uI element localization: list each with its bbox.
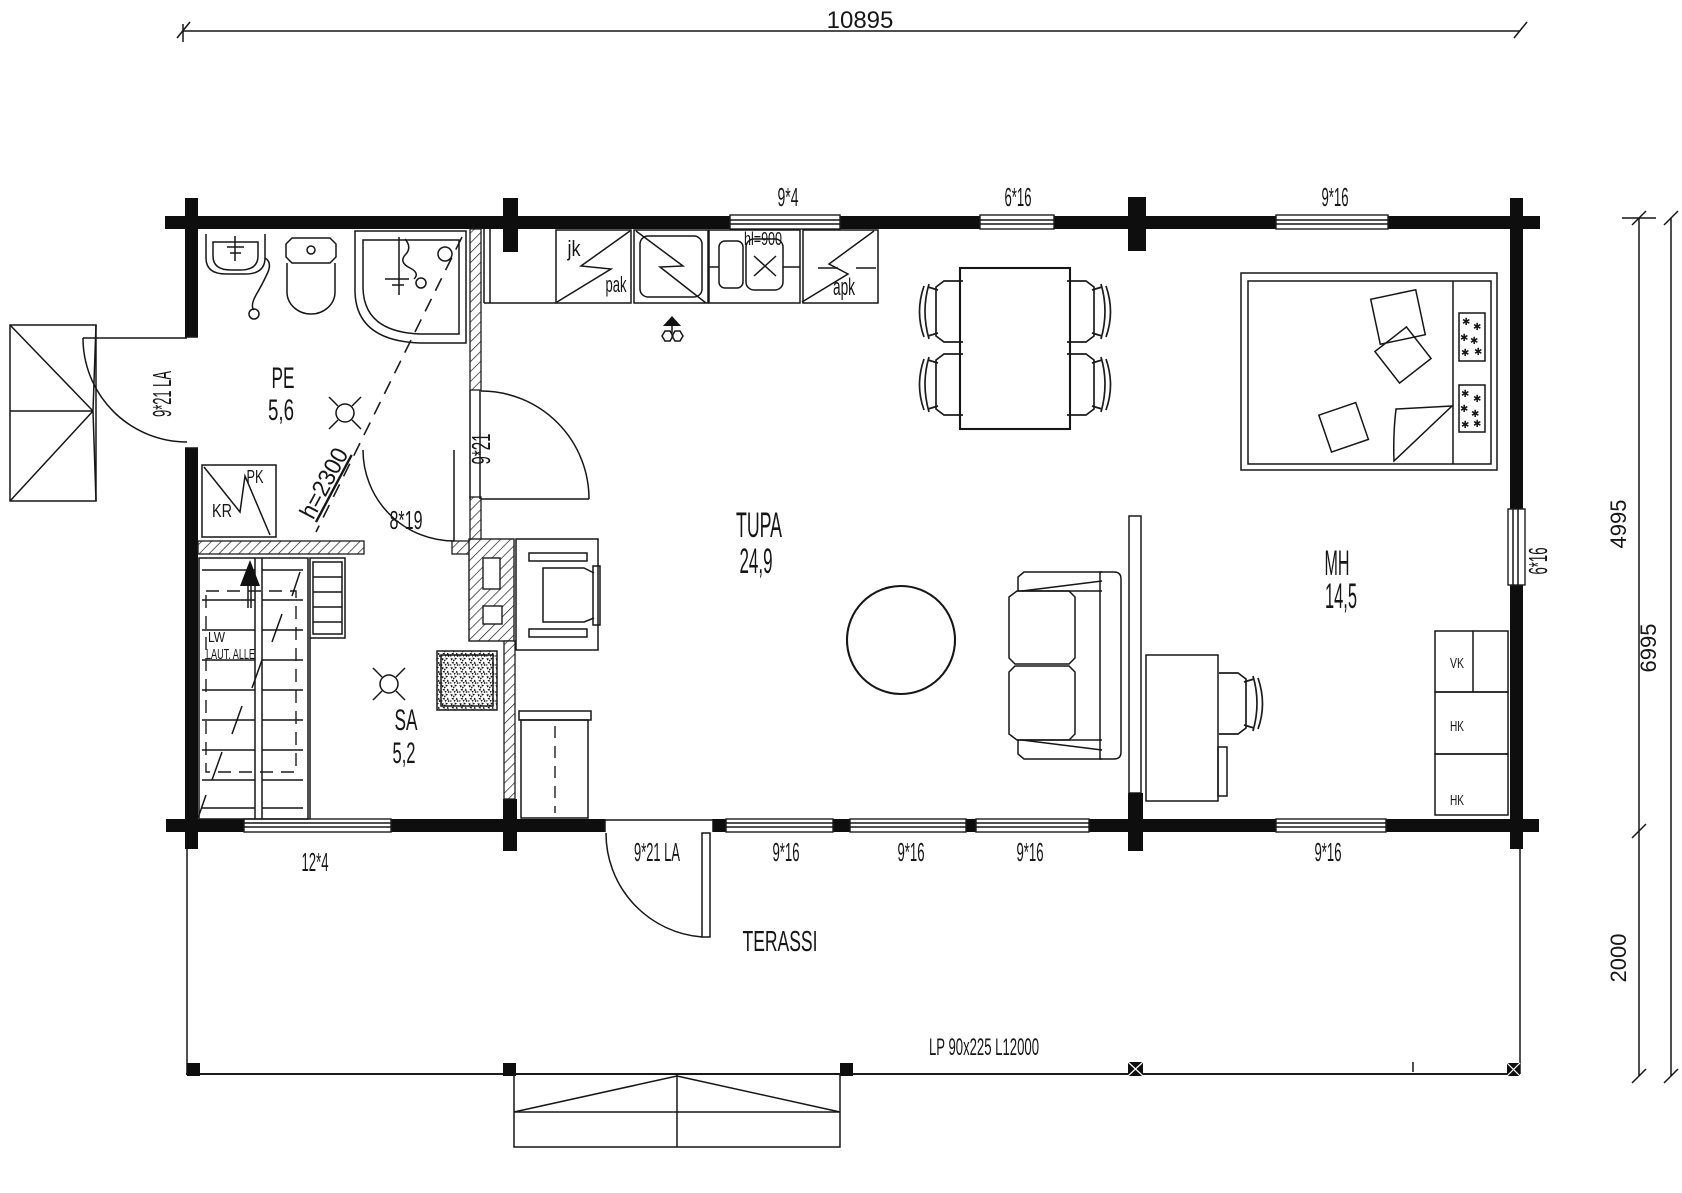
- svg-text:2000: 2000: [1606, 934, 1631, 983]
- svg-text:5,6: 5,6: [268, 394, 294, 427]
- svg-text:TERASSI: TERASSI: [743, 926, 818, 958]
- svg-text:9*16: 9*16: [898, 837, 925, 867]
- svg-text:✱: ✱: [1470, 336, 1478, 347]
- svg-text:✱: ✱: [1474, 347, 1482, 358]
- svg-text:✱: ✱: [1460, 333, 1468, 344]
- svg-text:14,5: 14,5: [1325, 577, 1357, 616]
- svg-text:LW: LW: [208, 629, 226, 646]
- svg-text:9*16: 9*16: [1322, 182, 1349, 212]
- svg-text:HK: HK: [1450, 718, 1464, 735]
- svg-text:PK: PK: [247, 467, 264, 487]
- svg-text:✱: ✱: [1460, 404, 1468, 415]
- svg-text:24,9: 24,9: [740, 542, 773, 581]
- svg-text:5,2: 5,2: [393, 737, 416, 770]
- svg-text:KR: KR: [212, 501, 232, 521]
- svg-text:LP 90x225 L12000: LP 90x225 L12000: [929, 1034, 1039, 1061]
- svg-text:8*19: 8*19: [390, 505, 423, 535]
- svg-text:jk: jk: [567, 236, 582, 261]
- svg-text:hl=900: hl=900: [744, 229, 782, 249]
- svg-text:HK: HK: [1450, 792, 1464, 809]
- svg-text:6*16: 6*16: [1005, 182, 1032, 212]
- svg-text:SA: SA: [395, 704, 418, 737]
- svg-text:✱: ✱: [1473, 322, 1481, 333]
- svg-text:9*16: 9*16: [773, 837, 800, 867]
- svg-text:6*16: 6*16: [1523, 548, 1553, 575]
- svg-text:✱: ✱: [1473, 394, 1481, 405]
- svg-text:12*4: 12*4: [302, 847, 329, 877]
- svg-text:✱: ✱: [1461, 348, 1469, 359]
- svg-text:PE: PE: [272, 362, 295, 395]
- svg-text:✱: ✱: [1462, 317, 1470, 328]
- svg-text:6995: 6995: [1636, 624, 1661, 673]
- svg-text:10895: 10895: [827, 7, 894, 34]
- svg-text:4995: 4995: [1606, 500, 1631, 549]
- svg-text:9*4: 9*4: [778, 182, 799, 212]
- svg-text:TUPA: TUPA: [736, 506, 782, 545]
- svg-text:9*21 LA: 9*21 LA: [147, 371, 177, 417]
- svg-text:9*16: 9*16: [1017, 837, 1044, 867]
- svg-text:✱: ✱: [1461, 389, 1469, 400]
- svg-text:apk: apk: [833, 274, 856, 301]
- svg-text:9*21 LA: 9*21 LA: [634, 837, 680, 867]
- svg-text:✱: ✱: [1473, 419, 1481, 430]
- svg-text:9*16: 9*16: [1315, 837, 1342, 867]
- svg-text:✱: ✱: [1461, 420, 1469, 431]
- svg-text:VK: VK: [1450, 655, 1464, 672]
- svg-text:LAUT. ALLE: LAUT. ALLE: [206, 646, 255, 663]
- svg-text:pak: pak: [606, 272, 628, 297]
